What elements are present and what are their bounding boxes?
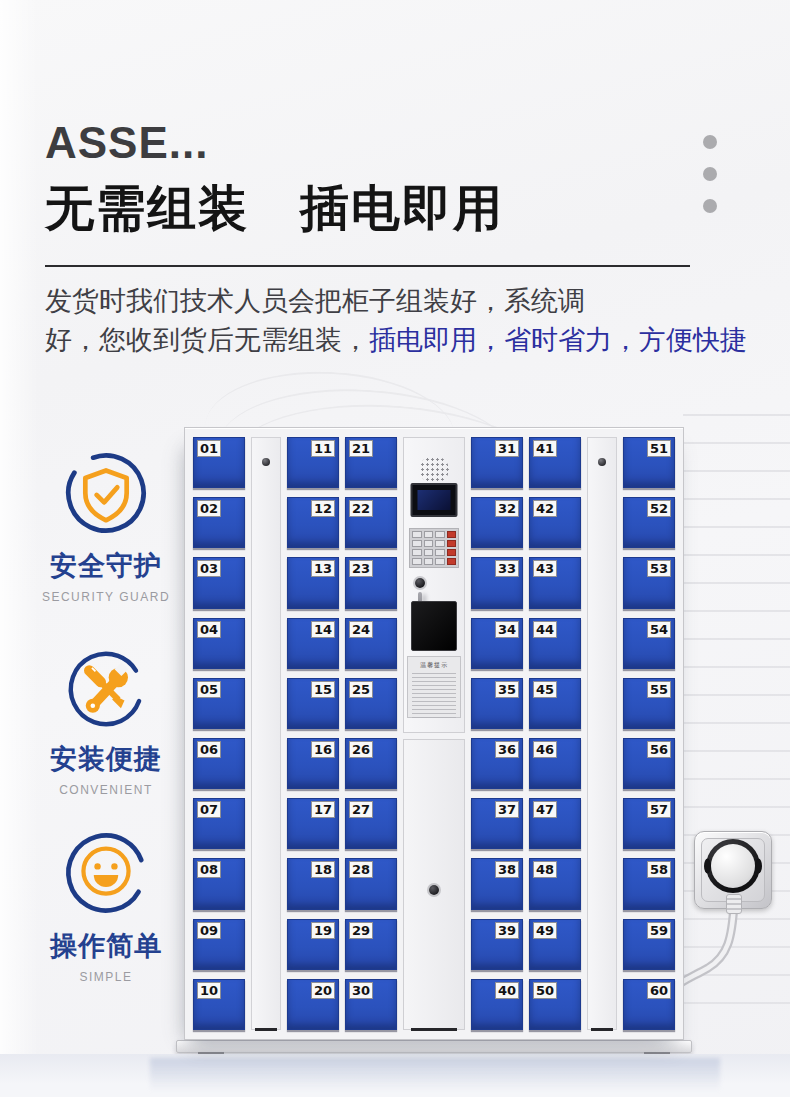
- keypad-key: [412, 549, 422, 556]
- brand-title: ASSE...: [45, 118, 209, 168]
- locker-door-47: 47: [529, 798, 581, 849]
- locker-door-58: 58: [623, 858, 675, 909]
- key-lock-icon: [415, 578, 425, 588]
- locker-door-52: 52: [623, 497, 675, 548]
- feature-simple: 操作简单 SIMPLE: [36, 826, 176, 984]
- power-plug: [711, 844, 755, 888]
- door-number-plate: 36: [495, 741, 519, 758]
- door-number-plate: 05: [197, 681, 221, 698]
- keypad-key: [447, 558, 457, 565]
- control-panel: 温馨提示: [403, 437, 465, 733]
- socket-recess: [706, 839, 760, 893]
- door-number-plate: 27: [349, 801, 373, 818]
- cabinet-base: [176, 1040, 692, 1053]
- keypad-key: [435, 549, 445, 556]
- background-highlight: [0, 0, 38, 1097]
- door-number-plate: 51: [647, 440, 671, 457]
- door-number-plate: 18: [311, 861, 335, 878]
- locker-door-24: 24: [345, 618, 397, 669]
- card-scanner: [411, 601, 457, 651]
- door-number-plate: 49: [533, 922, 557, 939]
- door-number-plate: 32: [495, 500, 519, 517]
- divider: [45, 265, 690, 267]
- locker-door-42: 42: [529, 497, 581, 548]
- door-number-plate: 26: [349, 741, 373, 758]
- keypad: [409, 528, 459, 568]
- locker-door-39: 39: [471, 919, 523, 970]
- door-number-plate: 16: [311, 741, 335, 758]
- door-number-plate: 01: [197, 440, 221, 457]
- feature-label-cn: 操作简单: [36, 928, 176, 964]
- locker-door-25: 25: [345, 678, 397, 729]
- keypad-key: [435, 540, 445, 547]
- locker-door-13: 13: [287, 557, 339, 608]
- door-number-plate: 39: [495, 922, 519, 939]
- locker-door-32: 32: [471, 497, 523, 548]
- keypad-key: [424, 549, 434, 556]
- locker-door-35: 35: [471, 678, 523, 729]
- locker-door-01: 01: [193, 437, 245, 488]
- keypad-key: [447, 531, 457, 538]
- door-number-plate: 38: [495, 861, 519, 878]
- locker-door-60: 60: [623, 979, 675, 1030]
- door-number-plate: 06: [197, 741, 221, 758]
- locker-door-02: 02: [193, 497, 245, 548]
- sticker-title: 温馨提示: [412, 661, 456, 670]
- keypad-key: [424, 558, 434, 565]
- door-number-plate: 29: [349, 922, 373, 939]
- locker-door-27: 27: [345, 798, 397, 849]
- door-number-plate: 41: [533, 440, 557, 457]
- door-number-plate: 45: [533, 681, 557, 698]
- locker-door-30: 30: [345, 979, 397, 1030]
- dot-icon: [703, 167, 717, 181]
- frame-strip: [587, 437, 617, 1030]
- screen-glow: [418, 490, 451, 510]
- door-number-plate: 43: [533, 560, 557, 577]
- locker-door-44: 44: [529, 618, 581, 669]
- locker-door-11: 11: [287, 437, 339, 488]
- locker-door-04: 04: [193, 618, 245, 669]
- keypad-key: [424, 540, 434, 547]
- locker-door-08: 08: [193, 858, 245, 909]
- door-number-plate: 21: [349, 440, 373, 457]
- locker-door-10: 10: [193, 979, 245, 1030]
- locker-door-05: 05: [193, 678, 245, 729]
- door-number-plate: 19: [311, 922, 335, 939]
- locker-door-51: 51: [623, 437, 675, 488]
- feature-label-cn: 安全守护: [36, 548, 176, 584]
- door-number-plate: 50: [533, 982, 557, 999]
- door-number-plate: 14: [311, 621, 335, 638]
- door-number-plate: 56: [647, 741, 671, 758]
- door-number-plate: 52: [647, 500, 671, 517]
- door-number-plate: 17: [311, 801, 335, 818]
- keypad-key: [412, 531, 422, 538]
- control-column: 温馨提示: [403, 437, 465, 1030]
- floor-reflection: [150, 1058, 720, 1092]
- screw-icon: [598, 458, 606, 466]
- door-number-plate: 30: [349, 982, 373, 999]
- door-number-plate: 28: [349, 861, 373, 878]
- door-number-plate: 12: [311, 500, 335, 517]
- decorative-dots: [703, 135, 717, 213]
- locker-door-07: 07: [193, 798, 245, 849]
- description-line2: 好，您收到货后无需组装，: [45, 325, 369, 355]
- power-socket: [694, 831, 772, 909]
- shield-check-icon: [59, 446, 153, 540]
- locker-door-33: 33: [471, 557, 523, 608]
- locker-door-23: 23: [345, 557, 397, 608]
- feature-label-en: SIMPLE: [36, 970, 176, 984]
- instruction-sticker: 温馨提示: [407, 656, 461, 718]
- door-number-plate: 57: [647, 801, 671, 818]
- locker-column-5: 41424344454647484950: [529, 437, 581, 1030]
- door-number-plate: 25: [349, 681, 373, 698]
- door-number-plate: 10: [197, 982, 221, 999]
- tools-icon: [62, 645, 150, 733]
- locker-door-43: 43: [529, 557, 581, 608]
- locker-door-21: 21: [345, 437, 397, 488]
- door-number-plate: 15: [311, 681, 335, 698]
- dot-icon: [703, 135, 717, 149]
- locker-door-09: 09: [193, 919, 245, 970]
- locker-door-40: 40: [471, 979, 523, 1030]
- door-number-plate: 44: [533, 621, 557, 638]
- door-number-plate: 47: [533, 801, 557, 818]
- locker-door-37: 37: [471, 798, 523, 849]
- dot-icon: [703, 199, 717, 213]
- socket-inner-plate: [701, 838, 765, 902]
- locker-door-22: 22: [345, 497, 397, 548]
- door-number-plate: 24: [349, 621, 373, 638]
- feature-label-cn: 安装便捷: [36, 741, 176, 777]
- screw-icon: [262, 458, 270, 466]
- description-line1: 发货时我们技术人员会把柜子组装好，系统调: [45, 286, 585, 316]
- door-number-plate: 34: [495, 621, 519, 638]
- locker-cabinet: 01020304050607080910 1112131415161718192…: [184, 427, 684, 1040]
- door-number-plate: 37: [495, 801, 519, 818]
- locker-door-36: 36: [471, 738, 523, 789]
- locker-door-14: 14: [287, 618, 339, 669]
- locker-door-50: 50: [529, 979, 581, 1030]
- frame-strip: [251, 437, 281, 1030]
- locker-door-26: 26: [345, 738, 397, 789]
- locker-door-18: 18: [287, 858, 339, 909]
- door-number-plate: 23: [349, 560, 373, 577]
- door-number-plate: 46: [533, 741, 557, 758]
- door-number-plate: 55: [647, 681, 671, 698]
- door-number-plate: 04: [197, 621, 221, 638]
- door-number-plate: 07: [197, 801, 221, 818]
- door-number-plate: 03: [197, 560, 221, 577]
- socket-contact: [704, 859, 711, 874]
- page-title: 无需组装 插电即用: [45, 176, 504, 242]
- door-number-plate: 31: [495, 440, 519, 457]
- feature-installation: 安装便捷 CONVENIENT: [36, 645, 176, 797]
- speaker-grille-icon: [419, 456, 449, 483]
- locker-door-49: 49: [529, 919, 581, 970]
- door-number-plate: 20: [311, 982, 335, 999]
- keypad-key: [412, 540, 422, 547]
- feature-label-en: CONVENIENT: [36, 783, 176, 797]
- door-number-plate: 11: [311, 440, 335, 457]
- door-number-plate: 42: [533, 500, 557, 517]
- door-number-plate: 59: [647, 922, 671, 939]
- locker-door-06: 06: [193, 738, 245, 789]
- locker-column-6: 51525354555657585960: [623, 437, 675, 1030]
- display-screen: [411, 483, 458, 517]
- locker-door-15: 15: [287, 678, 339, 729]
- locker-door-12: 12: [287, 497, 339, 548]
- door-number-plate: 09: [197, 922, 221, 939]
- door-number-plate: 54: [647, 621, 671, 638]
- keypad-key: [447, 540, 457, 547]
- control-lower-door: [403, 739, 465, 1030]
- description-highlight: 插电即用，省时省力，方便快捷: [369, 325, 747, 355]
- locker-column-2: 11121314151617181920: [287, 437, 339, 1030]
- locker-door-56: 56: [623, 738, 675, 789]
- smiley-icon: [59, 826, 153, 920]
- door-number-plate: 02: [197, 500, 221, 517]
- locker-door-38: 38: [471, 858, 523, 909]
- locker-door-28: 28: [345, 858, 397, 909]
- keypad-key: [447, 549, 457, 556]
- keypad-key: [435, 531, 445, 538]
- locker-door-57: 57: [623, 798, 675, 849]
- locker-door-45: 45: [529, 678, 581, 729]
- locker-door-20: 20: [287, 979, 339, 1030]
- locker-door-54: 54: [623, 618, 675, 669]
- keyhole-icon: [429, 885, 439, 895]
- locker-door-55: 55: [623, 678, 675, 729]
- locker-door-16: 16: [287, 738, 339, 789]
- plug-neck: [726, 894, 742, 914]
- locker-door-59: 59: [623, 919, 675, 970]
- door-number-plate: 58: [647, 861, 671, 878]
- door-number-plate: 33: [495, 560, 519, 577]
- door-number-plate: 48: [533, 861, 557, 878]
- door-number-plate: 40: [495, 982, 519, 999]
- locker-door-34: 34: [471, 618, 523, 669]
- door-number-plate: 53: [647, 560, 671, 577]
- locker-column-4: 31323334353637383940: [471, 437, 523, 1030]
- description: 发货时我们技术人员会把柜子组装好，系统调 好，您收到货后无需组装，插电即用，省时…: [45, 282, 760, 360]
- locker-door-03: 03: [193, 557, 245, 608]
- door-number-plate: 35: [495, 681, 519, 698]
- door-number-plate: 22: [349, 500, 373, 517]
- feature-label-en: SECURITY GUARD: [36, 590, 176, 604]
- socket-contact: [755, 859, 762, 874]
- locker-door-19: 19: [287, 919, 339, 970]
- sticker-text-lines: [412, 673, 456, 719]
- keypad-key: [435, 558, 445, 565]
- locker-door-31: 31: [471, 437, 523, 488]
- door-number-plate: 13: [311, 560, 335, 577]
- locker-door-17: 17: [287, 798, 339, 849]
- feature-security: 安全守护 SECURITY GUARD: [36, 446, 176, 604]
- locker-door-46: 46: [529, 738, 581, 789]
- locker-door-48: 48: [529, 858, 581, 909]
- locker-column-3: 21222324252627282930: [345, 437, 397, 1030]
- locker-door-41: 41: [529, 437, 581, 488]
- keypad-key: [424, 531, 434, 538]
- keypad-key: [412, 558, 422, 565]
- locker-door-53: 53: [623, 557, 675, 608]
- door-number-plate: 08: [197, 861, 221, 878]
- locker-column-1: 01020304050607080910: [193, 437, 245, 1030]
- locker-door-29: 29: [345, 919, 397, 970]
- door-number-plate: 60: [647, 982, 671, 999]
